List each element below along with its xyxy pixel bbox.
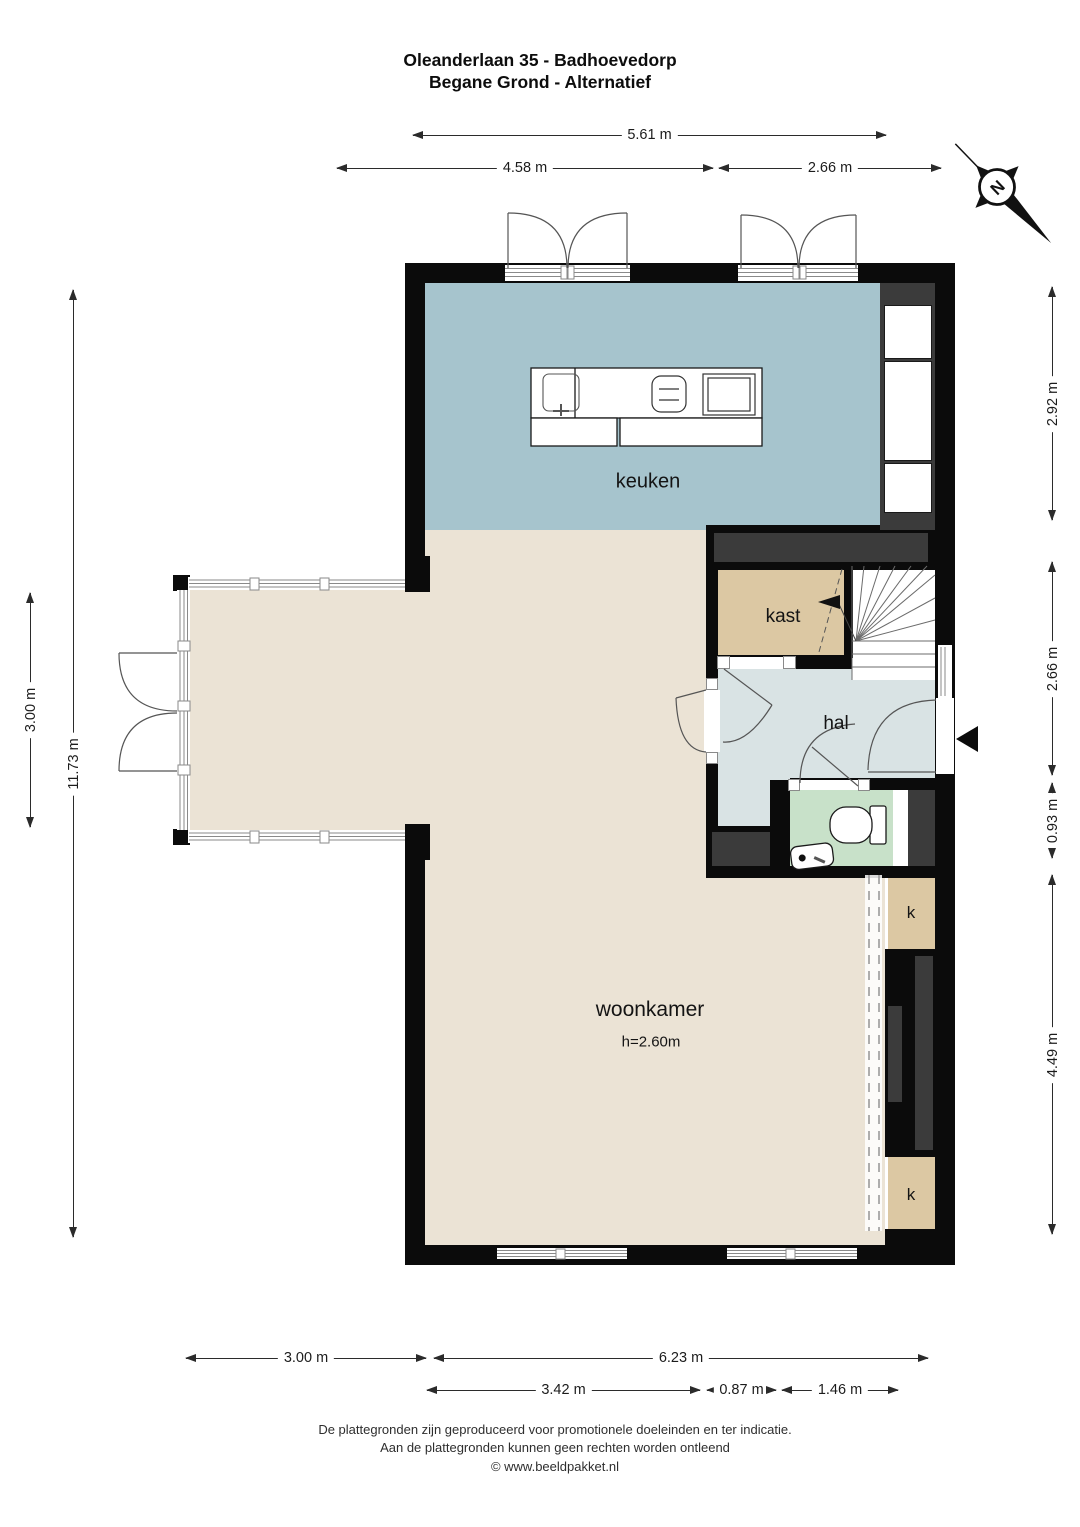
wall-under-hal-gray (712, 832, 778, 868)
floor-plan-canvas: Oleanderlaan 35 - Badhoevedorp Begane Gr… (0, 0, 1080, 1527)
wall-toilet-left (770, 780, 790, 878)
room-woonkamer-bay-floor (189, 590, 425, 830)
title-line1: Oleanderlaan 35 - Badhoevedorp (0, 49, 1080, 71)
dim-right-stairs: 2.66 m (1052, 562, 1053, 775)
entrance-arrow-icon (956, 726, 978, 752)
label-ceiling-height: h=2.60m (622, 1034, 681, 1051)
kitchen-appliance-middle (884, 361, 932, 461)
dim-bottom-sub-mid: 0.87 m (707, 1390, 776, 1391)
opening-top-doors-2 (738, 265, 858, 281)
room-toilet-floor (790, 790, 893, 866)
label-keuken: keuken (616, 471, 681, 494)
footer-disclaimer: De plattegronden zijn geproduceerd voor … (30, 1421, 1080, 1476)
kitchen-appliance-top (884, 305, 932, 359)
dim-bottom-right: 6.23 m (434, 1358, 928, 1359)
wall-kitchen-divider-gray (714, 533, 928, 562)
dim-top-total: 5.61 m (413, 135, 886, 136)
label-woonkamer: woonkamer (596, 998, 705, 1022)
wall-hal-left-bottom (706, 752, 718, 832)
jamb-toilet-door-right (858, 779, 870, 791)
opening-front-door (936, 698, 954, 774)
window-bottom-2 (727, 1248, 857, 1259)
label-hal: hal (823, 713, 848, 735)
window-entry-sidelight (938, 645, 952, 698)
wall-below-k2 (885, 1229, 935, 1245)
jamb-hal-door-bottom (706, 752, 718, 764)
kitchen-appliance-bottom (884, 463, 932, 513)
bay-post-top-left (173, 575, 190, 591)
dim-bottom-left: 3.00 m (186, 1358, 426, 1359)
footer-line1: De plattegronden zijn geproduceerd voor … (30, 1421, 1080, 1439)
wall-left-upper (405, 263, 425, 558)
page-title: Oleanderlaan 35 - Badhoevedorp Begane Gr… (0, 49, 1080, 93)
compass-north-label: N (987, 177, 1009, 199)
wall-bottom (405, 1245, 955, 1265)
dim-right-kitchen: 2.92 m (1052, 287, 1053, 520)
opening-toilet-door (798, 780, 860, 790)
jamb-toilet-door-left (788, 779, 800, 791)
bay-post-bottom-left (173, 829, 190, 845)
wall-top (405, 263, 955, 283)
wall-corner-bay-top (405, 556, 430, 592)
label-closet-k1: k (907, 903, 916, 923)
stairs-floor (852, 566, 935, 680)
dim-right-door: 0.93 m (1052, 783, 1053, 858)
dim-right-living: 4.49 m (1052, 875, 1053, 1234)
label-kast: kast (766, 606, 801, 628)
dim-top-right: 2.66 m (719, 168, 941, 169)
compass-icon: N (934, 123, 1073, 264)
dim-bottom-sub-left: 3.42 m (427, 1390, 700, 1391)
dim-top-left: 4.58 m (337, 168, 713, 169)
chimney-inner-2 (888, 1006, 902, 1102)
toilet-duct-strip (893, 790, 908, 866)
footer-line2: Aan de plattegronden kunnen geen rechten… (30, 1439, 1080, 1457)
wall-kast-stairs-divider (844, 566, 853, 658)
jamb-kast-door-right (783, 656, 796, 669)
dim-left-total: 11.73 m (73, 290, 74, 1237)
bay-window-top (188, 577, 405, 590)
opening-hal-door (704, 690, 720, 752)
label-closet-k2: k (907, 1185, 916, 1205)
chimney-inner-1 (915, 956, 933, 1150)
jamb-kast-door-left (717, 656, 730, 669)
wall-band-below-toilet (706, 866, 955, 878)
bay-window-bottom (188, 830, 405, 843)
footer-line3: © www.beeldpakket.nl (30, 1458, 1080, 1476)
dim-left-upper: 3.00 m (30, 593, 31, 827)
title-line2: Begane Grond - Alternatief (0, 71, 1080, 93)
toilet-gray-strip (908, 790, 935, 866)
jamb-hal-door-top (706, 678, 718, 690)
window-bottom-1 (497, 1248, 627, 1259)
dim-bottom-sub-right: 1.46 m (782, 1390, 898, 1391)
room-hal-floor-ext (718, 780, 770, 826)
bay-french-doors (119, 653, 177, 771)
opening-kast-door (730, 657, 783, 669)
opening-top-doors-1 (505, 265, 630, 281)
wall-left-lower (405, 824, 425, 1265)
